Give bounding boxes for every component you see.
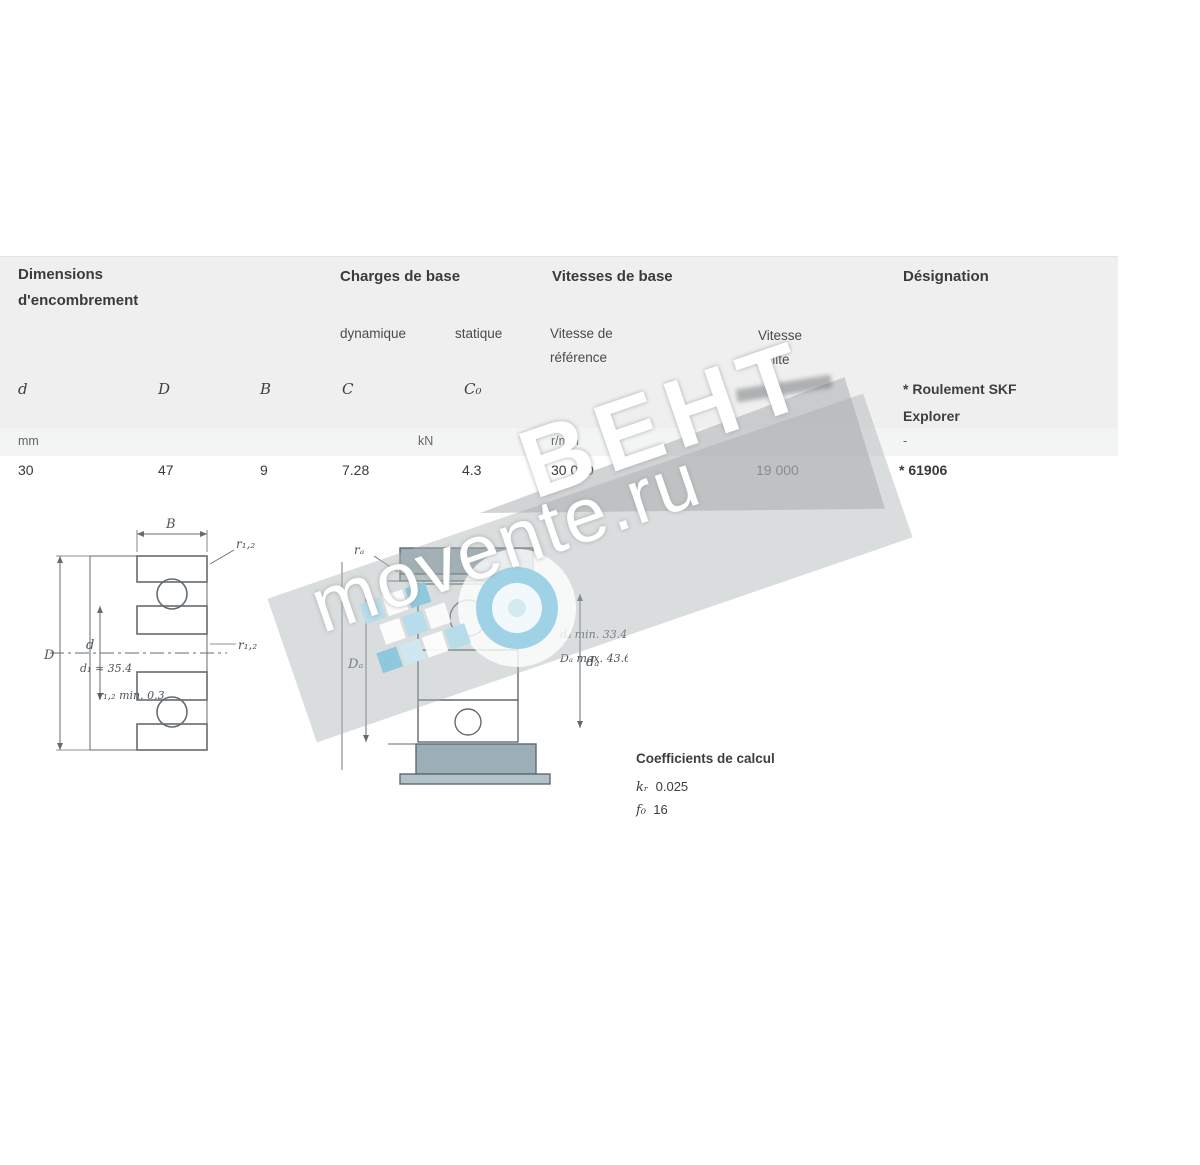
factor-f0-symbol: f₀	[636, 803, 646, 818]
cell-D: 47	[158, 462, 174, 478]
label-Da: Dₐ	[347, 657, 363, 672]
bearing-mounting-drawing: rₐ Dₐ dₐ dₐ min. 33.4 Dₐ max. 43.6	[328, 532, 628, 787]
factor-kr-value: 0.025	[656, 779, 689, 794]
factor-kr-symbol: kᵣ	[636, 780, 648, 795]
cell-B: 9	[260, 462, 268, 478]
col-group-dimensions: Dimensions d'encombrement	[18, 262, 138, 314]
label-da-note: dₐ min. 33.4	[560, 628, 627, 641]
label-r12-top: r₁,₂	[236, 537, 255, 551]
bearing-spec-table: Dimensions d'encombrement Charges de bas…	[0, 256, 1200, 506]
cell-lim-speed: 19 000	[756, 462, 799, 478]
col-group-speeds: Vitesses de base	[552, 264, 673, 290]
cell-d: 30	[18, 462, 34, 478]
subheader-static: statique	[455, 322, 502, 346]
label-ra: rₐ	[354, 543, 364, 557]
dimensions-label-line2: d'encombrement	[18, 288, 138, 314]
label-d: d	[86, 638, 94, 653]
label-r12-side: r₁,₂	[238, 638, 257, 652]
factor-f0-value: 16	[653, 802, 667, 817]
unit-loads: kN	[418, 434, 433, 448]
symbol-C: C	[342, 380, 353, 398]
factors-title: Coefficients de calcul	[636, 748, 775, 770]
label-rmin-note: r₁,₂ min. 0.3	[98, 689, 165, 702]
calculation-factors: Coefficients de calcul kᵣ 0.025 f₀ 16	[636, 748, 775, 822]
bearing-section-drawing: B r₁,₂ D d r₁,₂ d₁ ≈ 35.4 r₁,₂ min. 0.3	[22, 494, 292, 772]
cell-designation: * 61906	[899, 462, 947, 478]
skf-explorer-note: * Roulement SKF Explorer	[903, 376, 1017, 430]
cell-C0: 4.3	[462, 462, 481, 478]
factor-f0: f₀ 16	[636, 799, 775, 822]
unit-speeds: r/min	[551, 434, 579, 448]
symbol-B: B	[260, 380, 271, 398]
ref-speed-line2: référence	[550, 346, 613, 370]
unit-designation: -	[903, 434, 907, 448]
factor-kr: kᵣ 0.025	[636, 776, 775, 799]
label-Da-note: Dₐ max. 43.6	[559, 652, 628, 665]
symbol-C0: C₀	[464, 380, 482, 398]
col-group-designation: Désignation	[903, 264, 989, 290]
label-B: B	[165, 517, 176, 532]
dimensions-label-line1: Dimensions	[18, 262, 138, 288]
explorer-note-line2: Explorer	[903, 403, 1017, 430]
cell-C: 7.28	[342, 462, 369, 478]
subheader-dynamic: dynamique	[340, 322, 406, 346]
cell-ref-speed: 30 000	[551, 462, 594, 478]
lim-speed-line2: limite	[758, 348, 802, 372]
subheader-lim-speed: Vitesse limite	[758, 324, 802, 372]
label-D: D	[43, 648, 55, 663]
unit-dims: mm	[18, 434, 39, 448]
ref-speed-line1: Vitesse de	[550, 322, 613, 346]
col-group-loads: Charges de base	[340, 264, 460, 290]
label-d1-note: d₁ ≈ 35.4	[80, 662, 132, 675]
subheader-ref-speed: Vitesse de référence	[550, 322, 613, 370]
explorer-note-line1: * Roulement SKF	[903, 376, 1017, 403]
symbol-d: d	[18, 380, 28, 398]
lim-speed-line1: Vitesse	[758, 324, 802, 348]
symbol-D: D	[158, 380, 170, 398]
